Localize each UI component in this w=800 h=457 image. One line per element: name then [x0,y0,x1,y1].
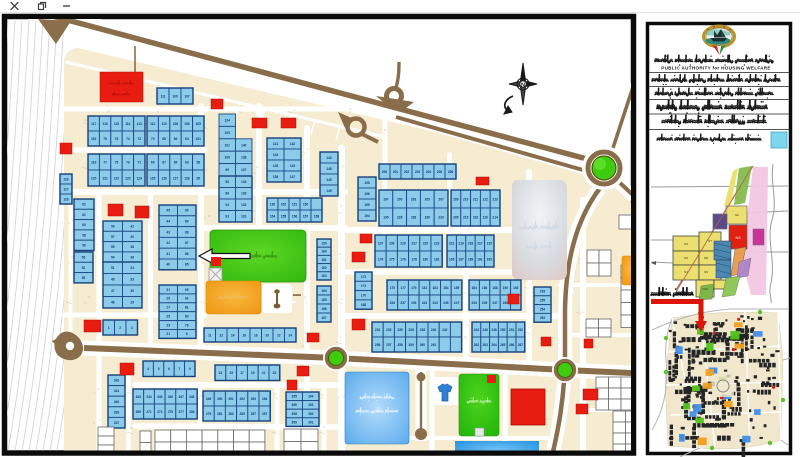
svg-text:50: 50 [82,276,86,280]
svg-text:245: 245 [443,301,449,305]
svg-text:237: 237 [400,301,406,305]
svg-text:100: 100 [225,156,231,160]
svg-text:271: 271 [146,410,152,414]
svg-text:264: 264 [491,343,497,347]
svg-text:302: 302 [308,412,314,416]
svg-text:211: 211 [473,197,478,201]
svg-text:245: 245 [482,301,488,305]
svg-text:128: 128 [184,176,190,180]
svg-text:258: 258 [397,343,403,347]
svg-text:89: 89 [185,220,189,224]
svg-text:247: 247 [492,301,498,305]
svg-text:N: N [521,83,525,89]
svg-text:53: 53 [82,255,86,259]
svg-text:85: 85 [185,263,189,267]
svg-text:273: 273 [157,410,163,414]
svg-text:120: 120 [91,176,97,180]
svg-text:212: 212 [483,197,489,201]
svg-text:N9: N9 [704,270,708,274]
svg-text:62: 62 [82,203,86,207]
svg-text:52: 52 [82,266,86,270]
svg-text:261: 261 [431,343,437,347]
svg-text:287: 287 [251,412,257,416]
svg-text:125: 125 [150,176,156,180]
svg-text:118: 118 [63,177,68,181]
svg-text:124: 124 [137,176,143,180]
svg-text:79: 79 [185,323,189,327]
svg-text:215: 215 [487,241,493,245]
svg-text:140: 140 [241,143,247,147]
svg-text:139: 139 [273,164,279,168]
svg-text:251: 251 [509,328,515,332]
svg-text:107: 107 [184,94,190,98]
svg-text:66: 66 [174,137,178,141]
svg-text:176: 176 [400,257,406,261]
svg-text:353: 353 [251,397,257,401]
svg-text:203: 203 [411,197,417,201]
svg-text:158: 158 [314,214,320,218]
svg-text:132: 132 [241,203,247,207]
svg-text:193: 193 [487,257,493,261]
svg-text:253: 253 [540,316,546,320]
svg-text:14: 14 [231,333,235,337]
svg-text:34: 34 [130,266,134,270]
svg-text:16: 16 [242,333,246,337]
svg-text:56: 56 [82,244,86,248]
svg-text:36: 36 [130,255,134,259]
svg-text:112: 112 [150,122,155,126]
svg-text:356: 356 [292,403,298,407]
svg-text:93: 93 [225,215,229,219]
svg-text:151: 151 [292,202,298,206]
svg-text:11: 11 [208,333,212,337]
svg-text:67: 67 [162,160,166,164]
svg-text:147: 147 [290,175,296,179]
svg-text:277: 277 [179,410,185,414]
svg-text:217: 217 [477,241,483,245]
svg-text:N6: N6 [684,242,688,246]
svg-text:23: 23 [273,371,277,375]
svg-text:21: 21 [166,332,170,336]
svg-text:339: 339 [189,410,195,414]
svg-text:68: 68 [162,137,166,141]
svg-text:229: 229 [400,241,406,245]
svg-text:234: 234 [390,301,396,305]
svg-text:116: 116 [103,122,108,126]
svg-text:81: 81 [185,306,189,310]
svg-text:339: 339 [114,410,120,414]
svg-text:45: 45 [166,209,170,213]
svg-text:243: 243 [472,301,478,305]
svg-text:21: 21 [262,371,266,375]
svg-text:219: 219 [458,241,464,245]
svg-text:49: 49 [111,278,115,282]
svg-text:162: 162 [321,266,327,270]
svg-text:3: 3 [131,326,133,330]
svg-text:342: 342 [114,379,120,383]
svg-text:43: 43 [166,230,170,234]
svg-text:73: 73 [126,160,130,164]
svg-text:172: 172 [361,275,367,279]
svg-text:109: 109 [172,94,178,98]
svg-text:133: 133 [241,192,247,196]
svg-text:29: 29 [166,297,170,301]
svg-text:267: 267 [518,343,524,347]
svg-text:177: 177 [400,286,406,290]
svg-text:179: 179 [411,286,417,290]
svg-text:337: 337 [114,421,120,425]
svg-text:29: 29 [130,301,134,305]
svg-text:166: 166 [321,307,327,311]
svg-text:123: 123 [125,176,131,180]
svg-text:55: 55 [111,245,115,249]
svg-text:90: 90 [185,209,189,213]
svg-text:247: 247 [454,301,460,305]
svg-text:71: 71 [138,160,142,164]
svg-text:30: 30 [130,289,134,293]
svg-text:352: 352 [240,397,246,401]
svg-text:54: 54 [111,255,115,259]
svg-text:150: 150 [303,202,309,206]
svg-text:200: 200 [397,197,403,201]
svg-text:178: 178 [412,257,418,261]
svg-text:265: 265 [500,343,506,347]
svg-text:65: 65 [174,160,178,164]
svg-text:134: 134 [241,180,247,184]
svg-text:165: 165 [321,298,327,302]
svg-text:80: 80 [185,314,189,318]
svg-text:190: 190 [503,286,509,290]
svg-text:233: 233 [386,328,392,332]
svg-text:99: 99 [225,168,229,172]
svg-text:27: 27 [166,306,170,310]
svg-text:184: 184 [472,286,478,290]
svg-text:210: 210 [463,197,469,201]
svg-text:254: 254 [540,307,546,311]
svg-text:203: 203 [415,170,421,174]
svg-text:22: 22 [277,333,281,337]
svg-text:96: 96 [225,192,229,196]
svg-text:98: 98 [225,180,229,184]
svg-text:182: 182 [434,257,440,261]
svg-text:275: 275 [168,410,174,414]
svg-text:33: 33 [130,278,134,282]
svg-text:N3: N3 [735,235,741,240]
svg-text:181: 181 [422,286,428,290]
svg-text:186: 186 [482,286,488,290]
svg-text:228: 228 [411,215,417,219]
svg-text:171: 171 [361,284,367,288]
svg-text:86: 86 [185,252,189,256]
svg-text:108: 108 [173,122,179,126]
svg-text:7: 7 [179,367,181,371]
svg-text:122: 122 [114,176,120,180]
svg-text:239: 239 [411,301,417,305]
svg-text:161: 161 [321,258,327,262]
svg-text:116: 116 [63,197,68,201]
svg-text:303: 303 [308,403,314,407]
svg-text:17: 17 [240,371,244,375]
svg-text:285: 285 [240,412,246,416]
svg-text:88: 88 [185,230,189,234]
svg-text:65: 65 [185,288,189,292]
svg-text:19: 19 [251,371,255,375]
svg-text:61: 61 [82,213,86,217]
svg-text:236: 236 [389,241,395,245]
svg-text:201: 201 [393,170,399,174]
svg-text:241: 241 [422,301,428,305]
svg-text:249: 249 [503,301,509,305]
svg-text:243: 243 [433,301,439,305]
svg-text:117: 117 [63,187,68,191]
svg-text:164: 164 [321,289,327,293]
svg-text:134: 134 [225,119,231,123]
svg-text:269: 269 [136,410,142,414]
svg-text:346: 346 [168,395,174,399]
svg-text:51: 51 [111,266,115,270]
svg-text:N2: N2 [735,213,739,217]
svg-text:170: 170 [361,294,367,298]
svg-text:263: 263 [483,343,489,347]
svg-text:113: 113 [137,122,142,126]
svg-text:262: 262 [474,343,480,347]
svg-text:257: 257 [386,343,392,347]
svg-text:194: 194 [364,214,370,218]
svg-text:304: 304 [308,395,314,399]
svg-text:214: 214 [492,215,498,219]
svg-text:283: 283 [228,412,234,416]
svg-text:266: 266 [509,343,515,347]
svg-text:350: 350 [217,397,223,401]
svg-text:357: 357 [262,412,268,416]
svg-text:195: 195 [364,203,370,207]
svg-text:6: 6 [186,332,188,336]
svg-text:38: 38 [130,245,134,249]
svg-text:87: 87 [185,241,189,245]
svg-text:213: 213 [492,197,498,201]
svg-text:13: 13 [219,371,223,375]
svg-text:189: 189 [454,286,460,290]
svg-text:1: 1 [108,326,110,330]
svg-text:141: 141 [273,142,279,146]
svg-text:240: 240 [431,328,437,332]
svg-text:N7: N7 [708,239,712,243]
svg-text:4: 4 [147,367,149,371]
svg-text:202: 202 [404,170,410,174]
svg-text:242: 242 [442,328,448,332]
svg-text:63: 63 [185,160,189,164]
svg-text:5: 5 [158,367,160,371]
svg-text:9: 9 [189,367,191,371]
svg-text:47: 47 [111,289,115,293]
svg-text:207: 207 [438,197,444,201]
svg-text:281: 281 [217,412,223,416]
svg-text:260: 260 [420,343,426,347]
svg-text:119: 119 [91,137,96,141]
svg-text:25: 25 [166,314,170,318]
svg-text:155: 155 [281,214,287,218]
svg-text:46: 46 [111,301,115,305]
svg-text:344: 344 [146,395,152,399]
svg-text:210: 210 [483,215,489,219]
svg-text:58: 58 [82,233,86,237]
svg-text:175: 175 [389,257,395,261]
svg-text:208: 208 [448,170,454,174]
svg-text:216: 216 [473,215,479,219]
svg-text:59: 59 [111,225,115,229]
svg-text:149: 149 [326,189,332,193]
svg-text:358: 358 [292,412,298,416]
svg-text:174: 174 [378,257,384,261]
svg-text:232: 232 [375,328,381,332]
svg-text:168: 168 [361,303,367,307]
svg-text:101: 101 [196,137,202,141]
svg-text:187: 187 [458,257,464,261]
svg-text:121: 121 [102,176,108,180]
svg-text:159: 159 [321,241,327,245]
svg-text:15: 15 [229,371,233,375]
svg-text:114: 114 [125,122,130,126]
svg-text:359: 359 [292,420,298,424]
svg-text:60: 60 [82,223,86,227]
svg-text:144: 144 [273,153,279,157]
svg-text:355: 355 [292,395,298,399]
svg-text:24: 24 [288,333,292,337]
svg-text:195: 195 [383,215,389,219]
svg-text:N8: N8 [704,256,708,260]
svg-text:40: 40 [130,235,134,239]
svg-text:6: 6 [168,367,170,371]
svg-text:218: 218 [468,241,474,245]
svg-text:117: 117 [91,122,96,126]
svg-text:138: 138 [241,156,247,160]
svg-text:354: 354 [262,397,268,401]
svg-text:223: 223 [434,241,440,245]
svg-text:345: 345 [157,395,163,399]
svg-text:204: 204 [426,170,432,174]
svg-text:44: 44 [166,220,170,224]
svg-text:200: 200 [382,170,388,174]
svg-text:229: 229 [438,215,444,219]
svg-text:102: 102 [225,143,231,147]
svg-text:343: 343 [136,395,142,399]
svg-text:185: 185 [449,257,455,261]
svg-text:126: 126 [161,176,167,180]
svg-text:57: 57 [111,235,115,239]
svg-text:137: 137 [241,168,247,172]
svg-text:175: 175 [390,286,396,290]
svg-text:106: 106 [184,122,190,126]
svg-text:103: 103 [225,131,231,135]
svg-text:12: 12 [219,333,223,337]
svg-text:351: 351 [228,397,234,401]
svg-text:2: 2 [119,326,121,330]
svg-text:64: 64 [185,137,189,141]
svg-text:256: 256 [375,343,381,347]
svg-text:145: 145 [326,178,332,182]
svg-text:246: 246 [483,328,489,332]
svg-text:115: 115 [114,122,119,126]
svg-text:188: 188 [492,286,498,290]
svg-text:163: 163 [321,274,327,278]
svg-text:279: 279 [206,412,212,416]
svg-text:235: 235 [397,328,403,332]
svg-text:74: 74 [126,137,130,141]
svg-text:119: 119 [91,160,96,164]
svg-text:226: 226 [397,215,403,219]
svg-text:206: 206 [437,170,443,174]
svg-text:215: 215 [463,215,469,219]
svg-text:131: 131 [241,215,247,219]
svg-text:31: 31 [166,288,170,292]
svg-text:138: 138 [273,175,279,179]
svg-text:105: 105 [196,122,202,126]
svg-text:184: 184 [443,286,449,290]
svg-text:349: 349 [206,397,212,401]
svg-text:75: 75 [115,160,119,164]
svg-text:72: 72 [138,137,142,141]
svg-text:148: 148 [326,167,332,171]
svg-text:259: 259 [409,343,415,347]
svg-text:255: 255 [540,299,546,303]
svg-text:79: 79 [103,137,107,141]
svg-text:127: 127 [173,176,179,180]
svg-text:196: 196 [364,192,370,196]
svg-text:167: 167 [321,316,327,320]
svg-text:347: 347 [179,395,185,399]
svg-text:69: 69 [151,160,155,164]
svg-text:225: 225 [423,241,429,245]
svg-text:192: 192 [513,286,519,290]
svg-text:209: 209 [453,197,459,201]
svg-text:23: 23 [166,323,170,327]
svg-text:40: 40 [166,263,170,267]
svg-text:20: 20 [265,333,269,337]
svg-text:236: 236 [409,328,415,332]
svg-text:156: 156 [292,214,298,218]
svg-text:154: 154 [270,214,276,218]
svg-text:PUBLIC AUTHORITY for HOUSIN: PUBLIC AUTHORITY for HOUSING WELFARE [661,66,771,71]
svg-text:193: 193 [540,290,546,294]
svg-text:76: 76 [115,137,119,141]
svg-text:205: 205 [453,215,459,219]
svg-text:252: 252 [518,328,524,332]
svg-text:301: 301 [308,420,314,424]
svg-text:348: 348 [189,395,195,399]
svg-text:18: 18 [254,333,258,337]
svg-text:250: 250 [500,328,506,332]
svg-text:197: 197 [383,197,389,201]
svg-text:42: 42 [166,241,170,245]
svg-text:70: 70 [151,137,155,141]
svg-text:198: 198 [364,181,370,185]
svg-text:111: 111 [161,94,166,98]
svg-text:191: 191 [477,257,483,261]
svg-text:244: 244 [474,328,480,332]
svg-text:94: 94 [225,203,229,207]
svg-text:62: 62 [185,297,189,301]
svg-text:77: 77 [103,160,107,164]
svg-text:95: 95 [197,176,201,180]
svg-text:N5: N5 [684,256,688,260]
svg-text:58: 58 [197,160,201,164]
svg-text:42: 42 [130,225,134,229]
svg-text:143: 143 [290,164,296,168]
svg-text:230: 230 [425,215,431,219]
svg-text:340: 340 [114,400,120,404]
svg-text:157: 157 [303,214,309,218]
svg-text:237: 237 [378,241,384,245]
